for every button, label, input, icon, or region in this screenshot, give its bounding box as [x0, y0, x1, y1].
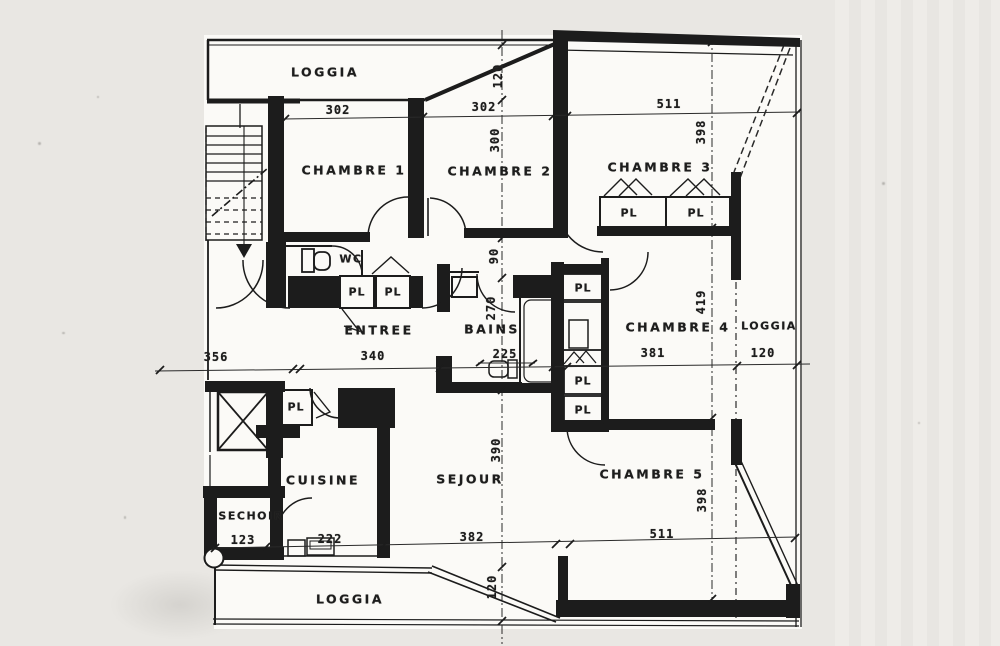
- room-label-chambre-2: CHAMBRE 2: [448, 164, 553, 179]
- closet-label-pl: PL: [384, 286, 401, 299]
- dim-loggia-right-depth: 120: [751, 346, 776, 360]
- closet-label-pl: PL: [348, 286, 365, 299]
- dim-chambre3-depth: 398: [694, 120, 708, 145]
- dim-left-exterior: 356: [204, 350, 229, 364]
- dim-chambre5-width: 511: [650, 527, 675, 541]
- dim-bains-depth: 270: [484, 296, 498, 321]
- scanned-floor-plan: LOGGIA CHAMBRE 1 CHAMBRE 2 CHAMBRE 3 WC …: [0, 0, 1000, 646]
- dim-chambre4-depth: 419: [694, 290, 708, 315]
- room-label-sechoir: SECHOIR: [218, 510, 283, 523]
- dim-cuisine-width: 222: [318, 532, 343, 546]
- room-label-sejour: SEJOUR: [436, 472, 504, 487]
- room-label-bains: BAINS: [464, 322, 520, 337]
- dim-loggia-bottom-depth: 120: [485, 575, 499, 600]
- closet-label-pl: PL: [620, 207, 637, 220]
- room-label-chambre-1: CHAMBRE 1: [302, 163, 407, 178]
- dim-chambre4-width: 381: [641, 346, 666, 360]
- dim-hall-width: 90: [487, 248, 501, 264]
- dim-bains-width: 225: [493, 347, 518, 361]
- dim-loggia-top-depth: 120: [491, 64, 505, 89]
- closet-label-pl: PL: [687, 207, 704, 220]
- room-label-loggia-top: LOGGIA: [291, 65, 359, 80]
- room-label-loggia-bottom: LOGGIA: [316, 592, 384, 607]
- room-label-chambre-5: CHAMBRE 5: [600, 467, 705, 482]
- room-label-chambre-3: CHAMBRE 3: [608, 160, 713, 175]
- dim-chambre5-depth: 398: [695, 488, 709, 513]
- room-label-chambre-4: CHAMBRE 4: [626, 320, 731, 335]
- room-label-entree: ENTREE: [344, 323, 413, 338]
- dim-chambre2-width: 302: [472, 100, 497, 114]
- closet-label-pl: PL: [287, 401, 304, 414]
- dim-sejour-depth: 390: [489, 438, 503, 463]
- closet-label-pl: PL: [574, 282, 591, 295]
- closet-label-pl: PL: [574, 404, 591, 417]
- dim-sechoir-width: 123: [231, 533, 256, 547]
- room-label-loggia-right: LOGGIA: [741, 320, 797, 333]
- dim-chambre3-width: 511: [657, 97, 682, 111]
- dim-entree-width: 340: [361, 349, 386, 363]
- dim-chambre1-width: 302: [326, 103, 351, 117]
- room-label-wc: WC: [339, 253, 362, 266]
- room-label-cuisine: CUISINE: [286, 473, 360, 488]
- dim-chambre2-depth: 300: [488, 128, 502, 153]
- closet-label-pl: PL: [574, 375, 591, 388]
- dim-sejour-width: 382: [460, 530, 485, 544]
